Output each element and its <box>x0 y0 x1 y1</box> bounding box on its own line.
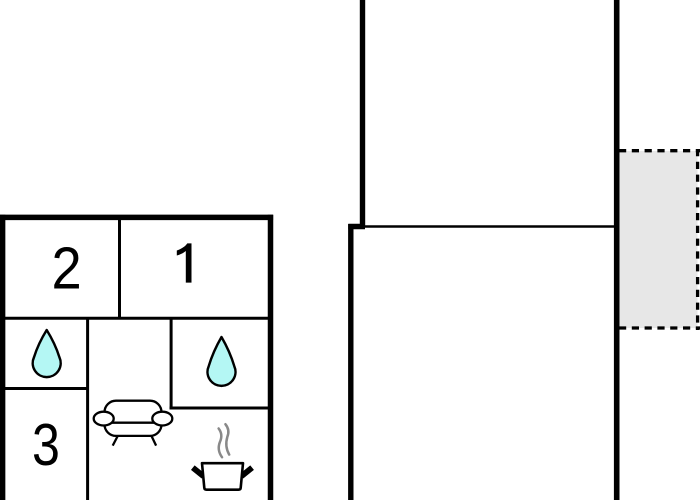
svg-text:3: 3 <box>32 411 60 478</box>
svg-text:2: 2 <box>52 237 82 303</box>
